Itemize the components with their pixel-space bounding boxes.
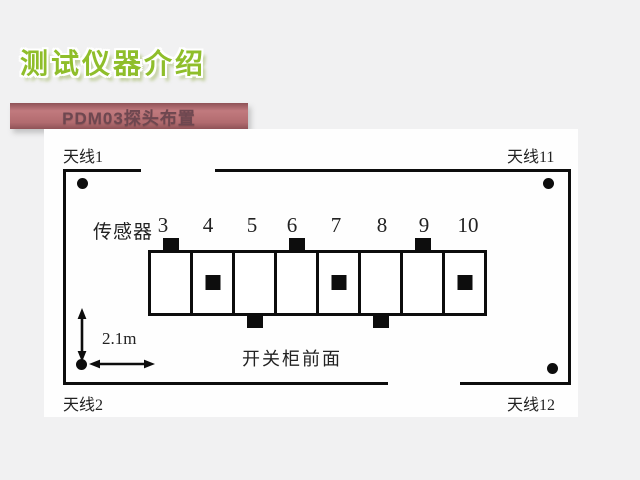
subtitle-bar: PDM03探头布置 [10, 103, 248, 129]
antenna-11-dot [543, 178, 554, 189]
horizontal-dimension-arrow [89, 360, 155, 369]
sensor-number-7: 7 [331, 213, 342, 238]
sensor-number-8: 8 [377, 213, 388, 238]
sensor-box-6 [274, 250, 319, 316]
sensor-box-5 [232, 250, 277, 316]
subtitle-label: PDM03探头布置 [62, 104, 196, 129]
sensor-number-6: 6 [287, 213, 298, 238]
room-border-left [63, 169, 66, 385]
room-border-right [568, 169, 571, 385]
sensor-marker-top [415, 238, 431, 250]
room-border-top-left-segment [63, 169, 141, 172]
sensor-marker-bottom [373, 316, 389, 328]
dimension-label: 2.1m [102, 329, 136, 349]
antenna-1-label: 天线1 [63, 143, 103, 167]
sensor-box-4 [190, 250, 235, 316]
sensor-box-10 [442, 250, 487, 316]
page-title: 测试仪器介绍 [20, 42, 206, 82]
sensor-marker-inner [331, 275, 346, 290]
sensor-number-4: 4 [203, 213, 214, 238]
sensor-number-5: 5 [247, 213, 258, 238]
sensor-marker-inner [457, 275, 472, 290]
sensor-marker-inner [205, 275, 220, 290]
sensor-number-10: 10 [458, 213, 479, 238]
antenna-12-label: 天线12 [507, 391, 555, 415]
slide: { "slide": { "title": "测试仪器介绍", "subtitl… [0, 0, 640, 480]
sensor-number-9: 9 [419, 213, 430, 238]
sensor-marker-top [289, 238, 305, 250]
sensor-box-8 [358, 250, 403, 316]
antenna-1-dot [77, 178, 88, 189]
sensor-marker-top [163, 238, 179, 250]
sensor-group-label: 传感器 [93, 217, 153, 244]
sensor-number-3: 3 [158, 213, 169, 238]
cabinet-front-label: 开关柜前面 [242, 345, 342, 371]
vertical-dimension-arrow [78, 308, 87, 362]
sensor-marker-bottom [247, 316, 263, 328]
antenna-11-label: 天线11 [507, 143, 554, 167]
room-border-bottom-left-segment [63, 382, 388, 385]
room-border-bottom-right-segment [460, 382, 571, 385]
sensor-box-7 [316, 250, 361, 316]
antenna-12-dot [547, 363, 558, 374]
antenna-2-label: 天线2 [63, 391, 103, 415]
room-border-top-right-segment [215, 169, 571, 172]
sensor-row [148, 250, 487, 316]
sensor-box-9 [400, 250, 445, 316]
